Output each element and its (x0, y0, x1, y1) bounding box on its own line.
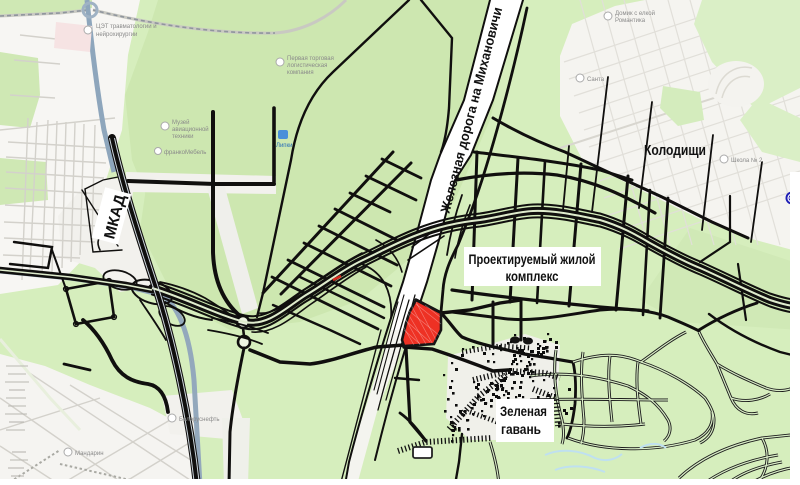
svg-text:Зеленая: Зеленая (500, 404, 547, 419)
svg-text:Колодищи: Колодищи (644, 142, 706, 159)
svg-text:ЦЭТ травматологии и: ЦЭТ травматологии и (96, 24, 157, 30)
svg-text:логистическая: логистическая (287, 63, 327, 69)
svg-text:Домик с елкой: Домик с елкой (615, 10, 655, 17)
svg-text:Белоруснефть: Белоруснефть (179, 417, 220, 423)
svg-text:компания: компания (287, 70, 314, 76)
svg-text:Санта: Санта (587, 77, 605, 83)
svg-text:авиационной: авиационной (172, 126, 209, 133)
svg-text:Первая торговая: Первая торговая (287, 56, 334, 62)
svg-text:франкоМебель: франкоМебель (164, 150, 206, 156)
svg-text:Мандарин: Мандарин (75, 451, 104, 457)
svg-text:Романтика: Романтика (615, 18, 646, 24)
svg-text:гавань: гавань (501, 422, 541, 437)
svg-text:Школа № 2: Школа № 2 (731, 157, 763, 164)
svg-text:Музей: Музей (172, 119, 189, 126)
svg-text:техники: техники (172, 134, 194, 140)
svg-text:комплекс: комплекс (506, 268, 559, 284)
svg-text:Липки: Липки (276, 143, 293, 149)
svg-text:Проектируемый жилой: Проектируемый жилой (469, 251, 596, 267)
svg-text:нейрохирургии: нейрохирургии (96, 31, 137, 38)
